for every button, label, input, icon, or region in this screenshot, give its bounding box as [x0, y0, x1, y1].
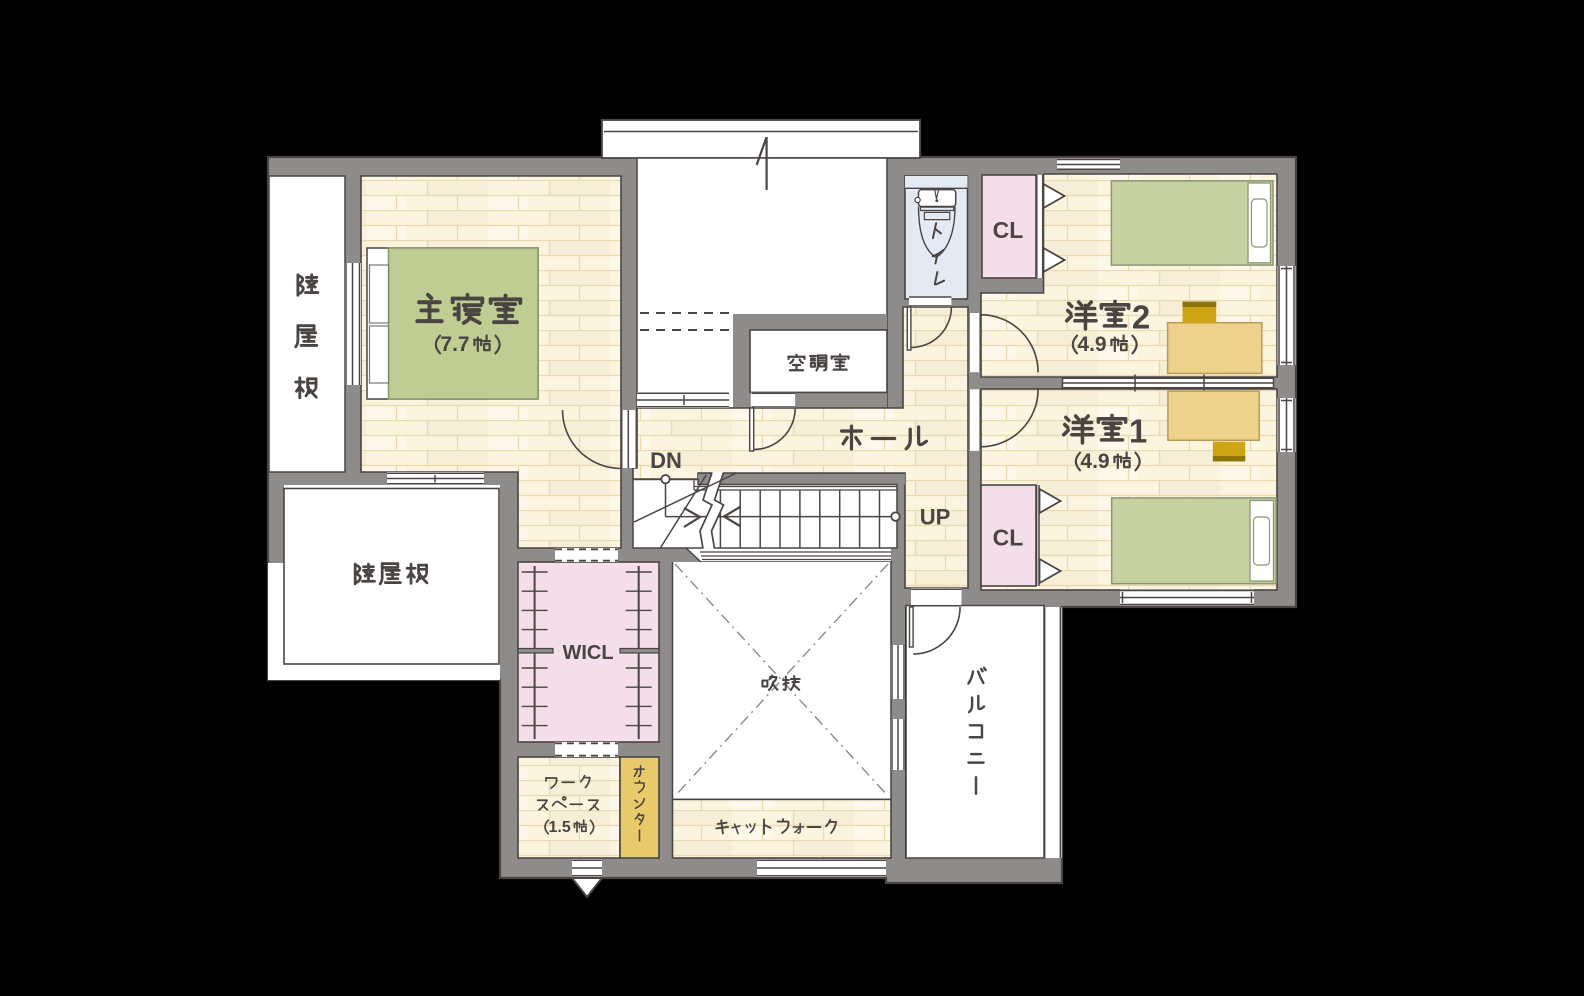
svg-text:7.7: 7.7	[440, 333, 469, 356]
svg-text:4.9: 4.9	[1077, 333, 1106, 356]
svg-text:1.5: 1.5	[548, 819, 570, 836]
svg-text:DN: DN	[650, 448, 682, 473]
svg-text:4.9: 4.9	[1080, 450, 1109, 473]
svg-text:UP: UP	[920, 505, 951, 530]
svg-text:1: 1	[1129, 413, 1147, 450]
svg-text:2: 2	[1132, 299, 1150, 336]
svg-text:WICL: WICL	[562, 642, 613, 664]
svg-text:CL: CL	[993, 525, 1024, 551]
svg-text:CL: CL	[993, 217, 1024, 243]
